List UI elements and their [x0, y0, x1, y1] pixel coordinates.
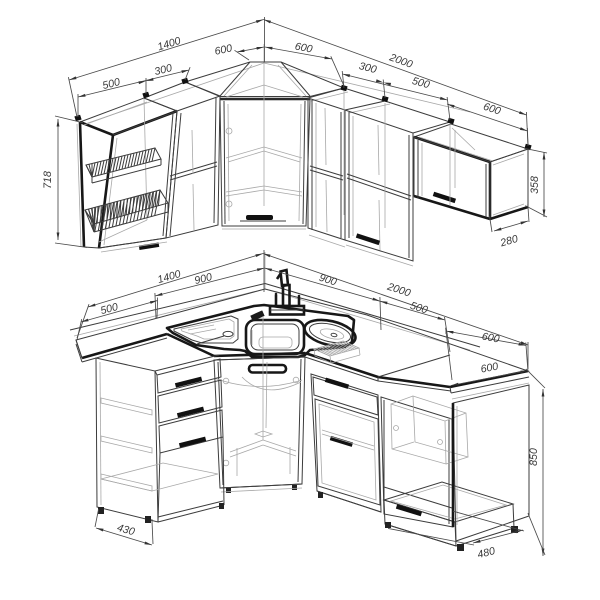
- svg-text:358: 358: [529, 176, 541, 194]
- svg-text:718: 718: [42, 171, 54, 189]
- svg-text:850: 850: [528, 448, 540, 466]
